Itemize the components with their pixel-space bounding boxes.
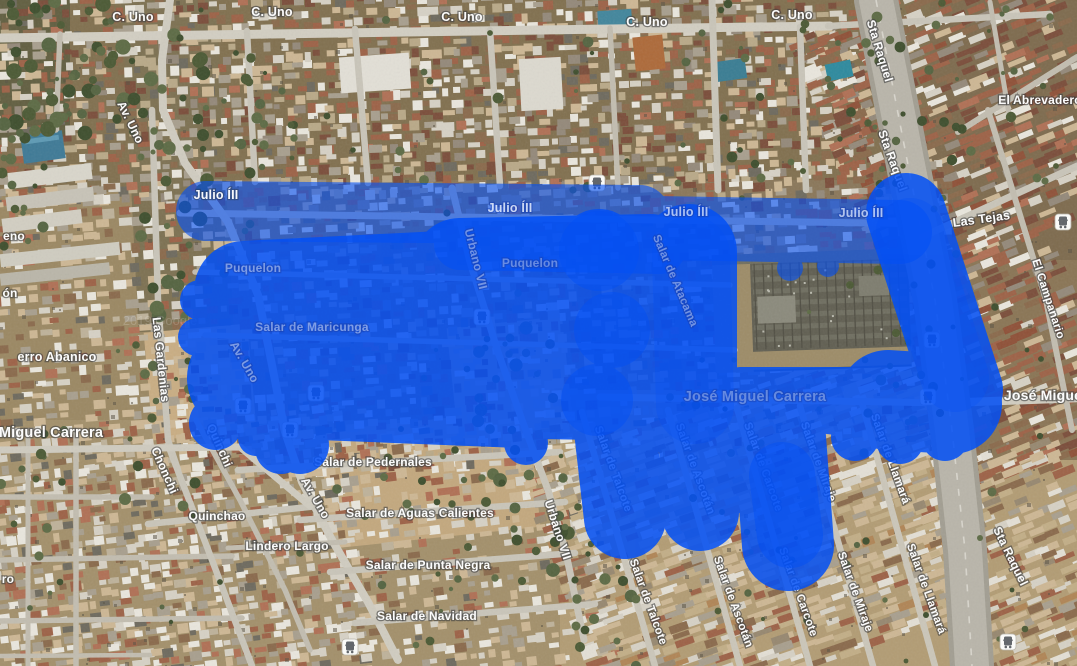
svg-text:Julio ÍII: Julio ÍII <box>194 187 239 202</box>
svg-text:Puquelon: Puquelon <box>225 261 281 275</box>
svg-text:Julio ÍII: Julio ÍII <box>839 205 884 220</box>
svg-text:José Miguel Carrera: José Miguel Carrera <box>684 389 827 405</box>
svg-text:Julio ÍII: Julio ÍII <box>664 204 709 219</box>
svg-text:Puquelon: Puquelon <box>502 256 558 270</box>
svg-text:Salar de Maricunga: Salar de Maricunga <box>255 320 369 334</box>
svg-text:Julio ÍII: Julio ÍII <box>488 200 533 215</box>
